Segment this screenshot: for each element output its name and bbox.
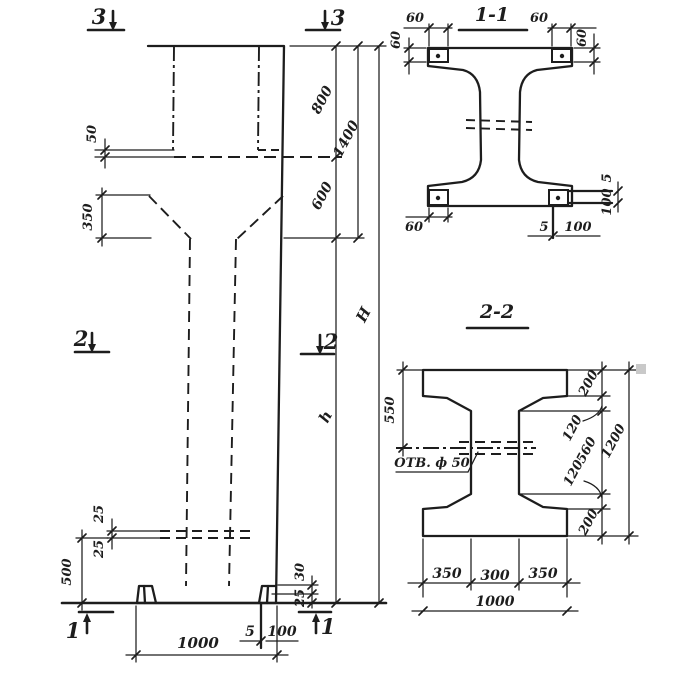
dim-25-top: 25 <box>92 505 107 524</box>
dim-200-bot: 200 <box>575 507 601 539</box>
elevation-view: 50 350 800 600 1400 h H <box>60 4 386 662</box>
section-2-2-outline <box>423 370 567 536</box>
dim-100-tab: 100 <box>600 188 615 215</box>
dim-25-corbel: 25 <box>293 589 308 608</box>
dim-200-top: 200 <box>575 368 601 400</box>
dim-1000-section: 1000 <box>476 594 515 610</box>
dim-H-total: H <box>352 303 375 326</box>
marker-1-left: 1 <box>66 618 81 643</box>
dim-100-lug: 100 <box>267 624 296 640</box>
dim-60-bottom: 60 <box>405 220 423 235</box>
dim-300: 300 <box>480 568 509 584</box>
hole-label: ОТВ. ф 50 <box>394 456 469 471</box>
dim-60-left: 60 <box>389 31 404 49</box>
scan-artifact <box>636 364 646 374</box>
embedded-plates <box>429 49 612 238</box>
marker-3-right: 3 <box>331 5 346 30</box>
dim-350-right: 350 <box>528 566 557 582</box>
dim-5-bottom: 5 <box>539 220 548 235</box>
section-2-2: 2-2 ОТВ. ф 50 550 <box>383 301 646 615</box>
section-1-1: 1-1 60 <box>389 4 622 240</box>
dim-550: 550 <box>383 396 398 423</box>
marker-2-right: 2 <box>323 329 339 354</box>
hole-lines: ОТВ. ф 50 <box>394 442 536 472</box>
section-1-1-title: 1-1 <box>475 4 509 26</box>
drawing-sheet: 50 350 800 600 1400 h H <box>0 0 700 700</box>
dim-350-left: 350 <box>432 566 461 582</box>
dim-h-shaft: h <box>315 408 336 426</box>
dim-350: 350 <box>81 203 96 230</box>
hidden-lines <box>95 47 342 586</box>
section-2-2-title: 2-2 <box>479 301 514 323</box>
section-markers: 3 3 2 2 1 1 <box>66 4 346 643</box>
dim-5-tab: 5 <box>600 173 615 182</box>
dim-60-right: 60 <box>575 29 590 47</box>
dim-1000-elevation: 1000 <box>177 634 219 652</box>
dim-60-top-left: 60 <box>406 11 424 26</box>
dim-25-bot: 25 <box>92 540 107 559</box>
marker-3-left: 3 <box>92 4 107 29</box>
section-2-2-dimensions: 550 200 120 560 120 200 <box>383 362 638 615</box>
dim-60-top-right: 60 <box>530 11 548 26</box>
dim-5-lug: 5 <box>245 624 255 640</box>
section-1-1-outline <box>428 48 572 206</box>
technical-drawing: 50 350 800 600 1400 h H <box>0 0 700 700</box>
dim-800: 800 <box>309 83 337 117</box>
dim-120-top: 120 <box>560 413 586 444</box>
dim-500: 500 <box>60 558 75 585</box>
dim-1200: 1200 <box>599 422 629 461</box>
dim-30-corbel: 30 <box>293 563 308 581</box>
marker-2-left: 2 <box>73 326 89 351</box>
marker-1-right: 1 <box>321 614 336 639</box>
dim-600: 600 <box>309 179 337 213</box>
dim-50: 50 <box>85 125 100 143</box>
dim-100-bottom: 100 <box>564 220 591 235</box>
